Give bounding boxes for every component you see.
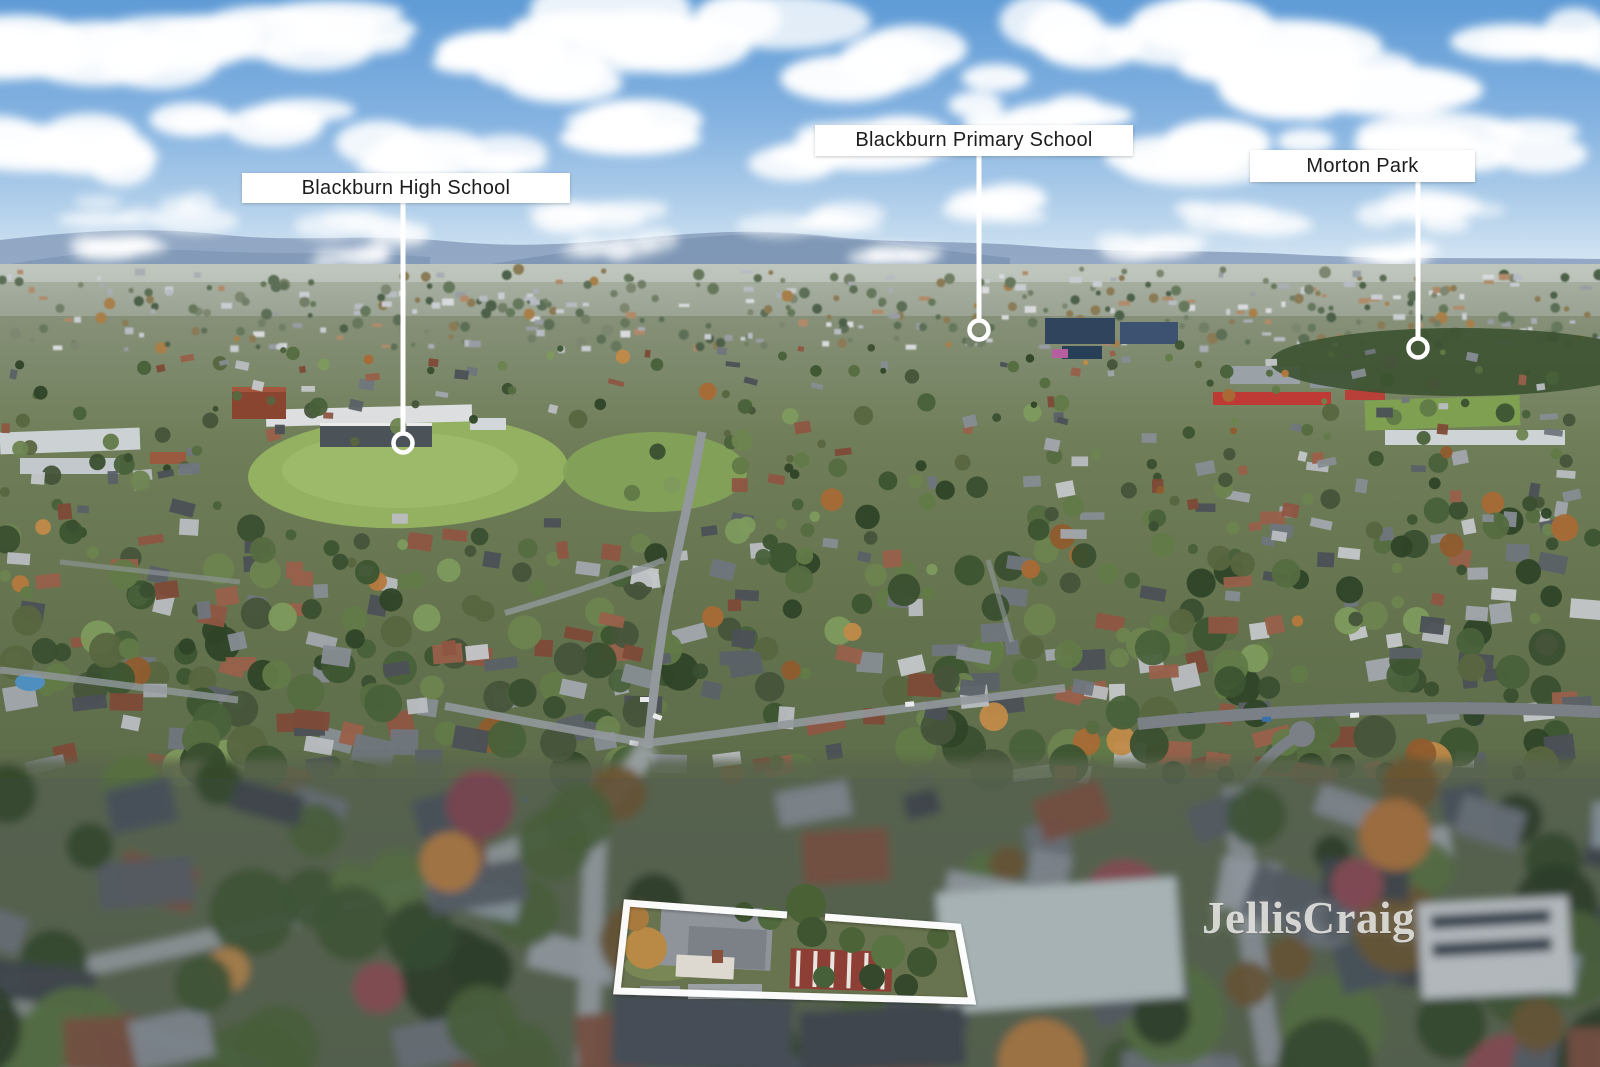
callout-label: Morton Park: [1306, 155, 1418, 178]
callout-blackburn-primary-school: Blackburn Primary School: [815, 125, 1133, 156]
callout-morton-park: Morton Park: [1250, 150, 1475, 182]
callout-blackburn-high-school: Blackburn High School: [242, 173, 570, 203]
callout-label: Blackburn High School: [302, 177, 511, 200]
callout-label: Blackburn Primary School: [855, 129, 1092, 152]
screenshot-root: Blackburn High School Blackburn Primary …: [0, 0, 1600, 1067]
agency-watermark: JellisCraig: [1202, 896, 1415, 941]
